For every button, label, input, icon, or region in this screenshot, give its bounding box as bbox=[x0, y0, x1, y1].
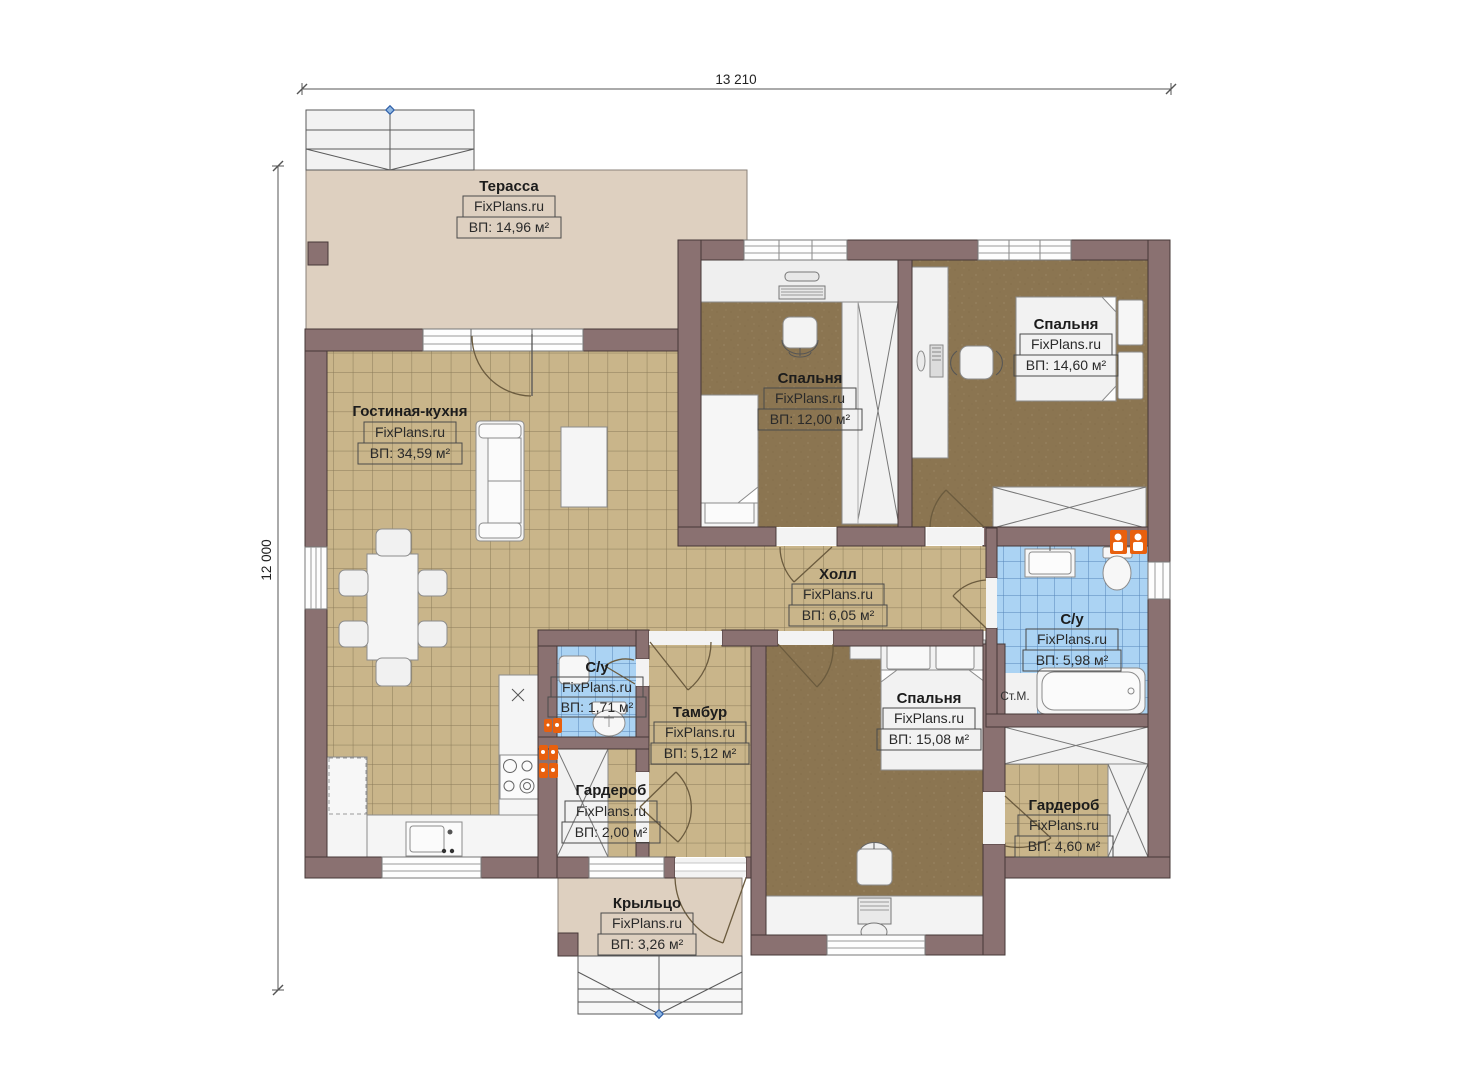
svg-text:С/у: С/у bbox=[585, 659, 609, 676]
svg-text:Холл: Холл bbox=[819, 566, 857, 583]
svg-text:Тамбур: Тамбур bbox=[673, 704, 727, 721]
svg-text:Крыльцо: Крыльцо bbox=[613, 895, 681, 912]
svg-text:FixPlans.ru: FixPlans.ru bbox=[612, 915, 682, 931]
svg-text:С/у: С/у bbox=[1060, 611, 1084, 628]
svg-text:FixPlans.ru: FixPlans.ru bbox=[803, 586, 873, 602]
svg-text:ВП: 5,12 м²: ВП: 5,12 м² bbox=[664, 745, 737, 761]
svg-text:Гостиная-кухня: Гостиная-кухня bbox=[353, 403, 468, 420]
svg-text:ВП: 34,59 м²: ВП: 34,59 м² bbox=[370, 445, 451, 461]
svg-text:ВП: 14,96 м²: ВП: 14,96 м² bbox=[469, 219, 550, 235]
svg-text:ВП: 6,05 м²: ВП: 6,05 м² bbox=[802, 607, 875, 623]
svg-text:FixPlans.ru: FixPlans.ru bbox=[474, 198, 544, 214]
svg-text:FixPlans.ru: FixPlans.ru bbox=[665, 724, 735, 740]
svg-text:ВП: 2,00 м²: ВП: 2,00 м² bbox=[575, 824, 648, 840]
svg-text:FixPlans.ru: FixPlans.ru bbox=[1037, 631, 1107, 647]
svg-text:ВП: 15,08 м²: ВП: 15,08 м² bbox=[889, 731, 970, 747]
svg-text:Спальня: Спальня bbox=[897, 690, 962, 707]
svg-text:ВП: 4,60 м²: ВП: 4,60 м² bbox=[1028, 838, 1101, 854]
svg-text:FixPlans.ru: FixPlans.ru bbox=[576, 803, 646, 819]
svg-text:ВП: 1,71 м²: ВП: 1,71 м² bbox=[561, 699, 634, 715]
svg-text:FixPlans.ru: FixPlans.ru bbox=[562, 679, 632, 695]
svg-text:FixPlans.ru: FixPlans.ru bbox=[375, 424, 445, 440]
svg-text:FixPlans.ru: FixPlans.ru bbox=[1029, 817, 1099, 833]
svg-text:Спальня: Спальня bbox=[778, 370, 843, 387]
svg-text:Гардероб: Гардероб bbox=[1029, 797, 1100, 814]
svg-text:ВП: 14,60 м²: ВП: 14,60 м² bbox=[1026, 357, 1107, 373]
svg-text:13 210: 13 210 bbox=[715, 72, 756, 87]
svg-text:ВП: 5,98 м²: ВП: 5,98 м² bbox=[1036, 652, 1109, 668]
svg-text:Терасса: Терасса bbox=[479, 178, 539, 195]
svg-text:12 000: 12 000 bbox=[259, 539, 274, 580]
svg-text:FixPlans.ru: FixPlans.ru bbox=[1031, 336, 1101, 352]
svg-text:FixPlans.ru: FixPlans.ru bbox=[894, 710, 964, 726]
svg-text:ВП: 3,26 м²: ВП: 3,26 м² bbox=[611, 936, 684, 952]
svg-text:Гардероб: Гардероб bbox=[576, 782, 647, 799]
svg-text:ВП: 12,00 м²: ВП: 12,00 м² bbox=[770, 411, 851, 427]
svg-text:Ст.М.: Ст.М. bbox=[1000, 689, 1030, 703]
svg-text:Спальня: Спальня bbox=[1034, 316, 1099, 333]
svg-text:FixPlans.ru: FixPlans.ru bbox=[775, 390, 845, 406]
